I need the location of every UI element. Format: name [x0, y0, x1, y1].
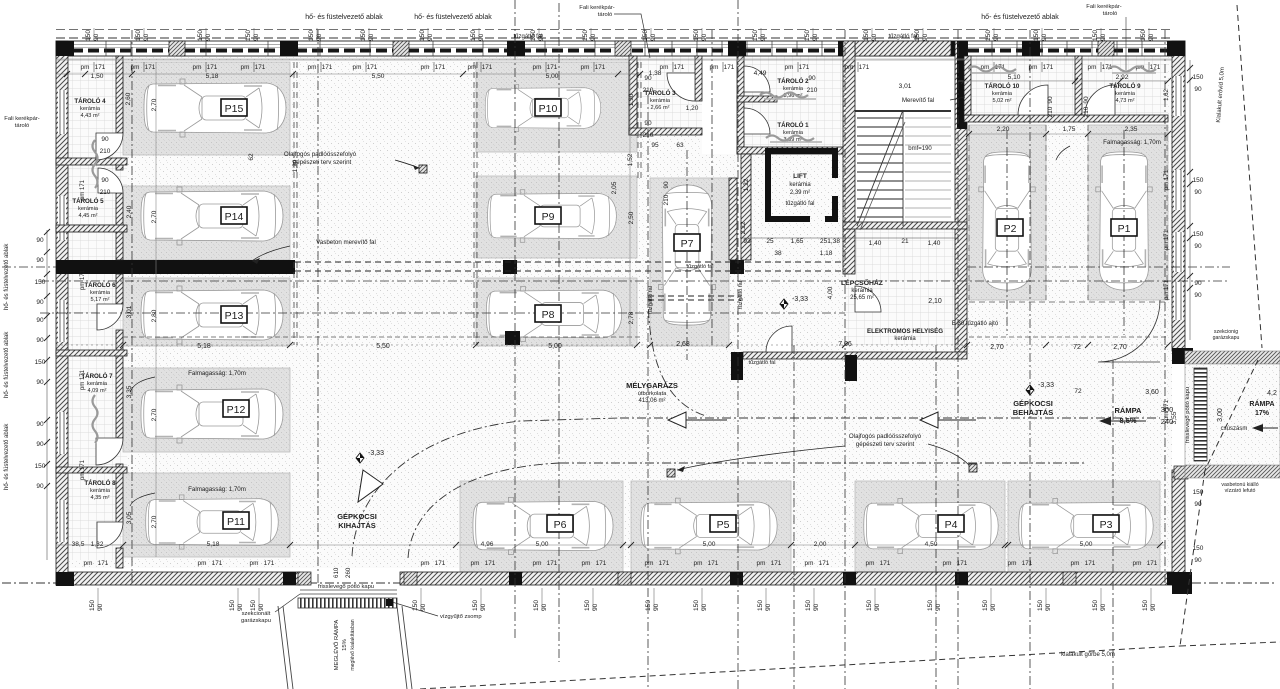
svg-text:pm: pm	[250, 560, 259, 567]
svg-text:2,66 m²: 2,66 m²	[651, 105, 670, 111]
svg-text:TÁROLÓ 8: TÁROLÓ 8	[84, 479, 116, 487]
svg-text:3,00: 3,00	[1217, 408, 1224, 422]
svg-text:150: 150	[35, 279, 46, 286]
svg-text:Olajfogós padlóösszefolyó: Olajfogós padlóösszefolyó	[849, 433, 922, 440]
svg-text:171: 171	[367, 64, 378, 71]
svg-text:171: 171	[596, 560, 607, 567]
svg-text:TÁROLÓ 2: TÁROLÓ 2	[777, 77, 809, 85]
svg-text:TÁROLÓ 5: TÁROLÓ 5	[72, 197, 104, 205]
svg-text:P4: P4	[945, 519, 958, 531]
svg-text:pm: pm	[645, 560, 654, 567]
svg-text:2,70: 2,70	[990, 344, 1004, 351]
svg-text:4,50: 4,50	[925, 541, 938, 548]
svg-text:pm: pm	[1088, 64, 1097, 71]
svg-text:3,55: 3,55	[1171, 411, 1178, 424]
svg-text:3,01: 3,01	[899, 83, 912, 90]
svg-text:kialakult görbe 5,0m: kialakult görbe 5,0m	[1061, 652, 1115, 658]
svg-text:5,10: 5,10	[1008, 74, 1021, 81]
svg-text:150: 150	[1092, 600, 1099, 611]
svg-text:1,90: 1,90	[628, 93, 635, 106]
svg-text:171: 171	[435, 560, 446, 567]
svg-text:72: 72	[1073, 344, 1081, 351]
svg-text:Fali kerékpár-: Fali kerékpár-	[1086, 4, 1122, 10]
svg-text:4,09 m²: 4,09 m²	[88, 388, 107, 394]
svg-text:E 30 tűzgátló ajtó: E 30 tűzgátló ajtó	[952, 321, 999, 327]
svg-text:150: 150	[927, 600, 934, 611]
svg-text:90: 90	[36, 483, 44, 490]
svg-text:90: 90	[644, 75, 652, 82]
svg-text:pm: pm	[805, 560, 814, 567]
svg-text:MEGLÉVŐ RÁMPA: MEGLÉVŐ RÁMPA	[333, 620, 340, 671]
svg-text:150: 150	[757, 600, 764, 611]
svg-text:1,50: 1,50	[91, 73, 104, 80]
svg-text:P5: P5	[717, 519, 730, 531]
svg-text:5,18: 5,18	[206, 73, 219, 80]
svg-text:2,70: 2,70	[151, 515, 158, 528]
svg-text:pm: pm	[471, 560, 480, 567]
svg-text:210: 210	[663, 194, 670, 205]
svg-text:171: 171	[98, 560, 109, 567]
svg-text:150: 150	[229, 600, 236, 611]
svg-text:hő- és füstelvezető ablak: hő- és füstelvezető ablak	[4, 331, 10, 398]
svg-text:90: 90	[1194, 501, 1202, 508]
svg-text:1,40: 1,40	[869, 240, 882, 247]
svg-text:pm: pm	[1071, 560, 1080, 567]
svg-text:kerámia: kerámia	[992, 91, 1013, 97]
svg-text:210: 210	[643, 132, 654, 139]
svg-text:4,73 m²: 4,73 m²	[1116, 98, 1135, 104]
svg-text:150: 150	[308, 30, 315, 41]
svg-text:pm: pm	[533, 64, 542, 71]
svg-text:2,10: 2,10	[928, 298, 942, 305]
svg-text:-3,33: -3,33	[368, 450, 384, 457]
svg-text:pm 171: pm 171	[80, 179, 86, 200]
svg-text:tűzgátló fal: tűzgátló fal	[738, 281, 744, 309]
svg-text:4,49: 4,49	[754, 70, 767, 77]
svg-text:Kialakult erővid 5,0m: Kialakult erővid 5,0m	[1216, 67, 1226, 123]
svg-text:vízzáró lefutó: vízzáró lefutó	[1225, 488, 1256, 494]
svg-text:-3,33: -3,33	[1038, 382, 1054, 389]
svg-text:hő- és füstelvezető ablak: hő- és füstelvezető ablak	[4, 423, 10, 490]
svg-text:2,00: 2,00	[814, 541, 827, 548]
svg-text:hő- és füstelvezető ablak: hő- és füstelvezető ablak	[981, 14, 1059, 21]
svg-text:171: 171	[435, 64, 446, 71]
svg-text:gépészeti terv szerint: gépészeti terv szerint	[293, 159, 352, 166]
svg-text:TÁROLÓ 7: TÁROLÓ 7	[81, 372, 113, 380]
svg-text:2,22: 2,22	[740, 221, 747, 234]
svg-text:pm: pm	[533, 560, 542, 567]
svg-text:4,96: 4,96	[481, 541, 494, 548]
svg-text:2,70: 2,70	[151, 210, 158, 223]
svg-text:2,40: 2,40	[126, 205, 133, 218]
svg-text:pm: pm	[866, 560, 875, 567]
svg-text:csúszásm: csúszásm	[1221, 426, 1248, 432]
svg-text:5,50: 5,50	[376, 343, 390, 350]
svg-text:5,18: 5,18	[197, 343, 211, 350]
svg-text:150: 150	[360, 30, 367, 41]
svg-text:90: 90	[36, 337, 44, 344]
svg-text:150: 150	[89, 600, 96, 611]
svg-text:17%: 17%	[1255, 410, 1270, 417]
svg-text:kerámia: kerámia	[87, 381, 108, 387]
svg-text:MÉLYGARÁZS: MÉLYGARÁZS	[626, 381, 678, 390]
svg-text:frisslevegő pótló kapu: frisslevegő pótló kapu	[318, 584, 374, 590]
svg-text:90: 90	[1194, 243, 1202, 250]
svg-text:25: 25	[766, 238, 774, 245]
svg-text:1,32: 1,32	[91, 541, 104, 548]
svg-text:pm: pm	[785, 64, 794, 71]
svg-text:Merevítő fal: Merevítő fal	[902, 97, 934, 104]
svg-text:tűzgátló fal: tűzgátló fal	[686, 264, 713, 270]
svg-text:ELEKTROMOS HELYISÉG: ELEKTROMOS HELYISÉG	[867, 327, 943, 335]
svg-text:150: 150	[1140, 30, 1147, 41]
svg-text:P9: P9	[542, 211, 555, 223]
svg-text:210: 210	[100, 189, 111, 196]
svg-text:pm: pm	[131, 64, 140, 71]
svg-text:pm: pm	[198, 560, 207, 567]
svg-text:tároló: tároló	[15, 123, 30, 129]
svg-text:1,75: 1,75	[1063, 126, 1076, 133]
svg-text:kerámia: kerámia	[90, 290, 111, 296]
svg-text:pm: pm	[1029, 64, 1038, 71]
svg-text:kerámia: kerámia	[1115, 91, 1136, 97]
svg-text:150: 150	[197, 30, 204, 41]
svg-text:garázskapu: garázskapu	[1213, 335, 1240, 341]
svg-text:150: 150	[866, 600, 873, 611]
svg-text:pm: pm	[421, 560, 430, 567]
svg-text:pm: pm	[1133, 560, 1142, 567]
svg-text:P14: P14	[225, 211, 244, 223]
svg-text:pm: pm	[84, 560, 93, 567]
svg-text:171: 171	[674, 64, 685, 71]
svg-text:RÁMPA: RÁMPA	[1249, 399, 1274, 408]
svg-text:1,20: 1,20	[686, 105, 699, 112]
svg-text:610: 610	[333, 567, 340, 578]
svg-text:tűzgátló fal: tűzgátló fal	[888, 34, 917, 40]
svg-text:210: 210	[100, 148, 111, 155]
svg-text:1,22: 1,22	[743, 178, 750, 191]
svg-text:Fali kerékpár-: Fali kerékpár-	[4, 116, 40, 122]
svg-text:kerámia: kerámia	[789, 182, 811, 188]
svg-text:150: 150	[1142, 600, 1149, 611]
svg-text:90: 90	[36, 421, 44, 428]
svg-text:pm: pm	[943, 560, 952, 567]
svg-text:2,80: 2,80	[151, 309, 158, 322]
svg-text:171: 171	[1147, 560, 1158, 567]
svg-text:171: 171	[322, 64, 333, 71]
svg-text:90: 90	[36, 257, 44, 264]
svg-text:kerámia: kerámia	[650, 98, 671, 104]
svg-text:5,17 m²: 5,17 m²	[91, 297, 110, 303]
svg-text:P15: P15	[225, 103, 244, 115]
svg-text:tűzgátló fal: tűzgátló fal	[748, 360, 775, 366]
svg-text:TÁROLÓ 10: TÁROLÓ 10	[985, 82, 1020, 90]
svg-text:171: 171	[724, 64, 735, 71]
svg-text:szekcionált: szekcionált	[242, 611, 271, 617]
svg-text:72: 72	[1074, 388, 1082, 395]
svg-text:Falmagasság: 1,70m: Falmagasság: 1,70m	[1103, 139, 1161, 146]
svg-text:5,50: 5,50	[372, 73, 385, 80]
svg-text:150: 150	[85, 30, 92, 41]
svg-text:pm: pm	[421, 64, 430, 71]
svg-text:251,38: 251,38	[820, 238, 840, 245]
svg-text:4,2: 4,2	[1267, 390, 1277, 397]
svg-text:171: 171	[482, 64, 493, 71]
svg-text:90: 90	[101, 177, 109, 184]
svg-text:90: 90	[36, 441, 44, 448]
svg-text:150: 150	[693, 600, 700, 611]
svg-text:150: 150	[1037, 600, 1044, 611]
svg-text:Falmagasság: 1,70m: Falmagasság: 1,70m	[188, 370, 246, 377]
svg-text:P10: P10	[539, 103, 558, 115]
svg-text:1,62: 1,62	[1164, 89, 1170, 101]
svg-text:3,05: 3,05	[126, 511, 133, 524]
svg-text:pm: pm	[710, 64, 719, 71]
svg-text:171: 171	[819, 560, 830, 567]
svg-text:P1: P1	[1118, 223, 1131, 235]
svg-text:TÁROLÓ 1: TÁROLÓ 1	[777, 121, 809, 129]
svg-text:90: 90	[1047, 96, 1054, 104]
svg-text:-3,33: -3,33	[792, 296, 808, 303]
svg-text:GÉPKOCSI: GÉPKOCSI	[1013, 399, 1053, 408]
svg-text:150: 150	[863, 30, 870, 41]
svg-text:62: 62	[248, 153, 255, 161]
svg-text:1,40: 1,40	[928, 240, 941, 247]
svg-text:meglévő kialakításban: meglévő kialakításban	[350, 619, 356, 670]
svg-text:8,5%: 8,5%	[1119, 416, 1136, 425]
svg-text:90: 90	[1194, 189, 1202, 196]
svg-text:3,35: 3,35	[126, 385, 133, 398]
svg-text:bmf=190: bmf=190	[908, 146, 932, 152]
svg-text:90: 90	[644, 120, 652, 127]
svg-text:5,00: 5,00	[546, 73, 559, 80]
svg-text:Falmagasság: 1,70m: Falmagasság: 1,70m	[188, 486, 246, 493]
svg-text:171: 171	[595, 64, 606, 71]
svg-text:413,06 m²: 413,06 m²	[638, 398, 665, 404]
svg-text:GÉPKOCSI: GÉPKOCSI	[337, 512, 377, 521]
svg-text:hő- és füstelvezető ablak: hő- és füstelvezető ablak	[414, 14, 492, 21]
svg-text:kerámia: kerámia	[851, 288, 873, 294]
svg-text:150: 150	[1092, 30, 1099, 41]
svg-text:4,43 m²: 4,43 m²	[81, 113, 100, 119]
svg-text:P13: P13	[225, 310, 244, 322]
svg-text:2,68: 2,68	[676, 341, 690, 348]
svg-text:210: 210	[1083, 106, 1090, 117]
svg-text:pm 171: pm 171	[80, 459, 86, 480]
svg-text:171: 171	[1022, 560, 1033, 567]
svg-text:150: 150	[645, 600, 652, 611]
svg-text:150: 150	[982, 600, 989, 611]
svg-text:kerámia: kerámia	[894, 336, 916, 342]
svg-text:90: 90	[808, 75, 816, 82]
svg-text:171: 171	[212, 560, 223, 567]
svg-text:5,00: 5,00	[1080, 541, 1093, 548]
svg-text:4,00: 4,00	[827, 286, 834, 299]
svg-text:90: 90	[1194, 557, 1202, 564]
svg-text:TÁROLÓ 9: TÁROLÓ 9	[1109, 82, 1141, 90]
svg-text:3,01: 3,01	[126, 305, 133, 318]
svg-text:P6: P6	[554, 519, 567, 531]
svg-text:pm 171: pm 171	[1164, 169, 1170, 190]
svg-text:kerámia: kerámia	[90, 488, 111, 494]
svg-text:Vasbeton merevítő fal: Vasbeton merevítő fal	[316, 239, 376, 246]
svg-text:P11: P11	[227, 516, 245, 528]
svg-text:tároló: tároló	[1103, 11, 1118, 17]
svg-text:1,20: 1,20	[292, 159, 299, 172]
svg-text:5,18: 5,18	[207, 541, 220, 548]
svg-text:pm: pm	[353, 64, 362, 71]
svg-text:171: 171	[880, 560, 891, 567]
svg-text:171: 171	[95, 64, 106, 71]
svg-text:150: 150	[419, 30, 426, 41]
svg-text:2,20: 2,20	[997, 126, 1010, 133]
svg-text:KIHAJTÁS: KIHAJTÁS	[338, 521, 376, 530]
svg-text:gépészeti terv szerint: gépészeti terv szerint	[856, 441, 915, 448]
svg-text:150: 150	[135, 30, 142, 41]
svg-text:90: 90	[36, 299, 44, 306]
svg-text:útburkolata: útburkolata	[638, 391, 667, 397]
svg-text:P7: P7	[681, 238, 694, 250]
svg-text:pm: pm	[757, 560, 766, 567]
svg-text:90: 90	[1194, 280, 1202, 287]
svg-text:vízgyűjtő zsomp: vízgyűjtő zsomp	[440, 614, 482, 620]
svg-text:P8: P8	[542, 309, 555, 321]
svg-text:pm: pm	[241, 64, 250, 71]
svg-text:150: 150	[582, 30, 589, 41]
svg-text:90: 90	[1194, 292, 1202, 299]
svg-text:2,39 m²: 2,39 m²	[790, 190, 810, 196]
svg-text:210: 210	[807, 87, 818, 94]
svg-text:150: 150	[1193, 177, 1204, 184]
svg-text:4,35 m²: 4,35 m²	[91, 495, 110, 501]
svg-text:3,60: 3,60	[1145, 389, 1159, 396]
svg-text:5,02 m²: 5,02 m²	[993, 98, 1012, 104]
svg-text:tűzgátló fal: tűzgátló fal	[513, 34, 542, 40]
svg-text:2,05: 2,05	[611, 181, 618, 194]
svg-text:1,18: 1,18	[820, 250, 833, 257]
svg-text:150: 150	[1033, 30, 1040, 41]
svg-text:hő- és füstelvezető ablak: hő- és füstelvezető ablak	[4, 243, 10, 310]
svg-text:Olajfogós padlóösszefolyó: Olajfogós padlóösszefolyó	[284, 151, 357, 158]
svg-text:tűzgátló fal: tűzgátló fal	[648, 286, 654, 314]
svg-text:210: 210	[1047, 106, 1054, 117]
svg-text:TÁROLÓ 3: TÁROLÓ 3	[644, 89, 676, 97]
svg-text:90: 90	[663, 181, 670, 189]
svg-text:pm 171: pm 171	[1164, 229, 1170, 250]
svg-text:150: 150	[470, 30, 477, 41]
svg-text:90: 90	[36, 237, 44, 244]
svg-text:frisslevegő pótló kapu: frisslevegő pótló kapu	[1185, 387, 1191, 443]
svg-text:150: 150	[584, 600, 591, 611]
svg-text:2,70: 2,70	[151, 98, 158, 111]
svg-text:LIFT: LIFT	[793, 173, 807, 180]
svg-text:2,60: 2,60	[125, 92, 132, 105]
svg-text:21: 21	[901, 238, 909, 245]
svg-text:150: 150	[1193, 231, 1204, 238]
svg-text:150: 150	[245, 30, 252, 41]
svg-text:4,45 m²: 4,45 m²	[79, 213, 98, 219]
svg-text:63: 63	[676, 142, 684, 149]
svg-text:pm: pm	[1008, 560, 1017, 567]
svg-text:5,00: 5,00	[548, 343, 562, 350]
svg-text:171: 171	[1043, 64, 1054, 71]
svg-text:TÁROLÓ 6: TÁROLÓ 6	[84, 281, 116, 289]
svg-text:1,52: 1,52	[627, 153, 634, 166]
svg-text:15%: 15%	[342, 639, 348, 651]
svg-text:TÁROLÓ 4: TÁROLÓ 4	[74, 97, 106, 105]
svg-text:38: 38	[774, 250, 782, 257]
svg-text:150: 150	[533, 600, 540, 611]
svg-text:150: 150	[1193, 545, 1204, 552]
svg-text:5,00: 5,00	[536, 541, 549, 548]
svg-text:BEHAJTÁS: BEHAJTÁS	[1013, 408, 1053, 417]
svg-text:90: 90	[101, 136, 109, 143]
svg-text:tároló: tároló	[598, 12, 613, 18]
svg-text:5,00: 5,00	[703, 541, 716, 548]
svg-text:171: 171	[547, 64, 558, 71]
svg-text:pm: pm	[468, 64, 477, 71]
svg-text:hő- és füstelvezető ablak: hő- és füstelvezető ablak	[305, 14, 383, 21]
svg-text:150: 150	[472, 600, 479, 611]
svg-text:171: 171	[659, 560, 670, 567]
svg-text:171: 171	[859, 64, 870, 71]
svg-text:P3: P3	[1100, 519, 1113, 531]
svg-text:2,70: 2,70	[151, 408, 158, 421]
svg-text:1,65: 1,65	[791, 238, 804, 245]
svg-text:kerámia: kerámia	[78, 206, 99, 212]
svg-text:150: 150	[985, 30, 992, 41]
svg-text:tűzgátló fal: tűzgátló fal	[785, 201, 814, 207]
svg-text:171: 171	[771, 560, 782, 567]
svg-text:P2: P2	[1004, 223, 1017, 235]
svg-text:171: 171	[957, 560, 968, 567]
svg-text:150: 150	[805, 600, 812, 611]
svg-text:90: 90	[36, 317, 44, 324]
svg-text:150: 150	[804, 30, 811, 41]
svg-text:90: 90	[36, 379, 44, 386]
svg-text:2,92: 2,92	[1116, 74, 1129, 81]
svg-text:2,50: 2,50	[628, 211, 635, 224]
svg-text:171: 171	[255, 64, 266, 71]
svg-text:171: 171	[207, 64, 218, 71]
svg-text:93: 93	[743, 238, 751, 245]
svg-text:260: 260	[345, 567, 352, 578]
svg-text:pm: pm	[193, 64, 202, 71]
svg-text:2,35: 2,35	[1125, 126, 1138, 133]
svg-text:pm 171: pm 171	[1164, 279, 1170, 300]
svg-text:38,5: 38,5	[72, 541, 85, 548]
svg-text:pm: pm	[81, 64, 90, 71]
svg-text:kerámia: kerámia	[783, 86, 804, 92]
svg-text:90: 90	[1083, 96, 1090, 104]
svg-text:LÉPCSŐHÁZ: LÉPCSŐHÁZ	[841, 278, 883, 287]
svg-text:95: 95	[651, 142, 659, 149]
svg-text:90: 90	[1194, 86, 1202, 93]
svg-text:pm: pm	[308, 64, 317, 71]
svg-text:pm: pm	[582, 560, 591, 567]
svg-text:171: 171	[145, 64, 156, 71]
svg-text:2,70: 2,70	[1113, 344, 1127, 351]
svg-text:RÁMPA: RÁMPA	[1115, 406, 1143, 415]
svg-text:kerámia: kerámia	[80, 106, 101, 112]
svg-text:150: 150	[752, 30, 759, 41]
svg-text:garázskapu: garázskapu	[241, 618, 271, 624]
svg-text:171: 171	[264, 560, 275, 567]
svg-text:171: 171	[547, 560, 558, 567]
svg-text:150: 150	[250, 600, 257, 611]
svg-text:P12: P12	[227, 404, 246, 416]
svg-text:171: 171	[708, 560, 719, 567]
